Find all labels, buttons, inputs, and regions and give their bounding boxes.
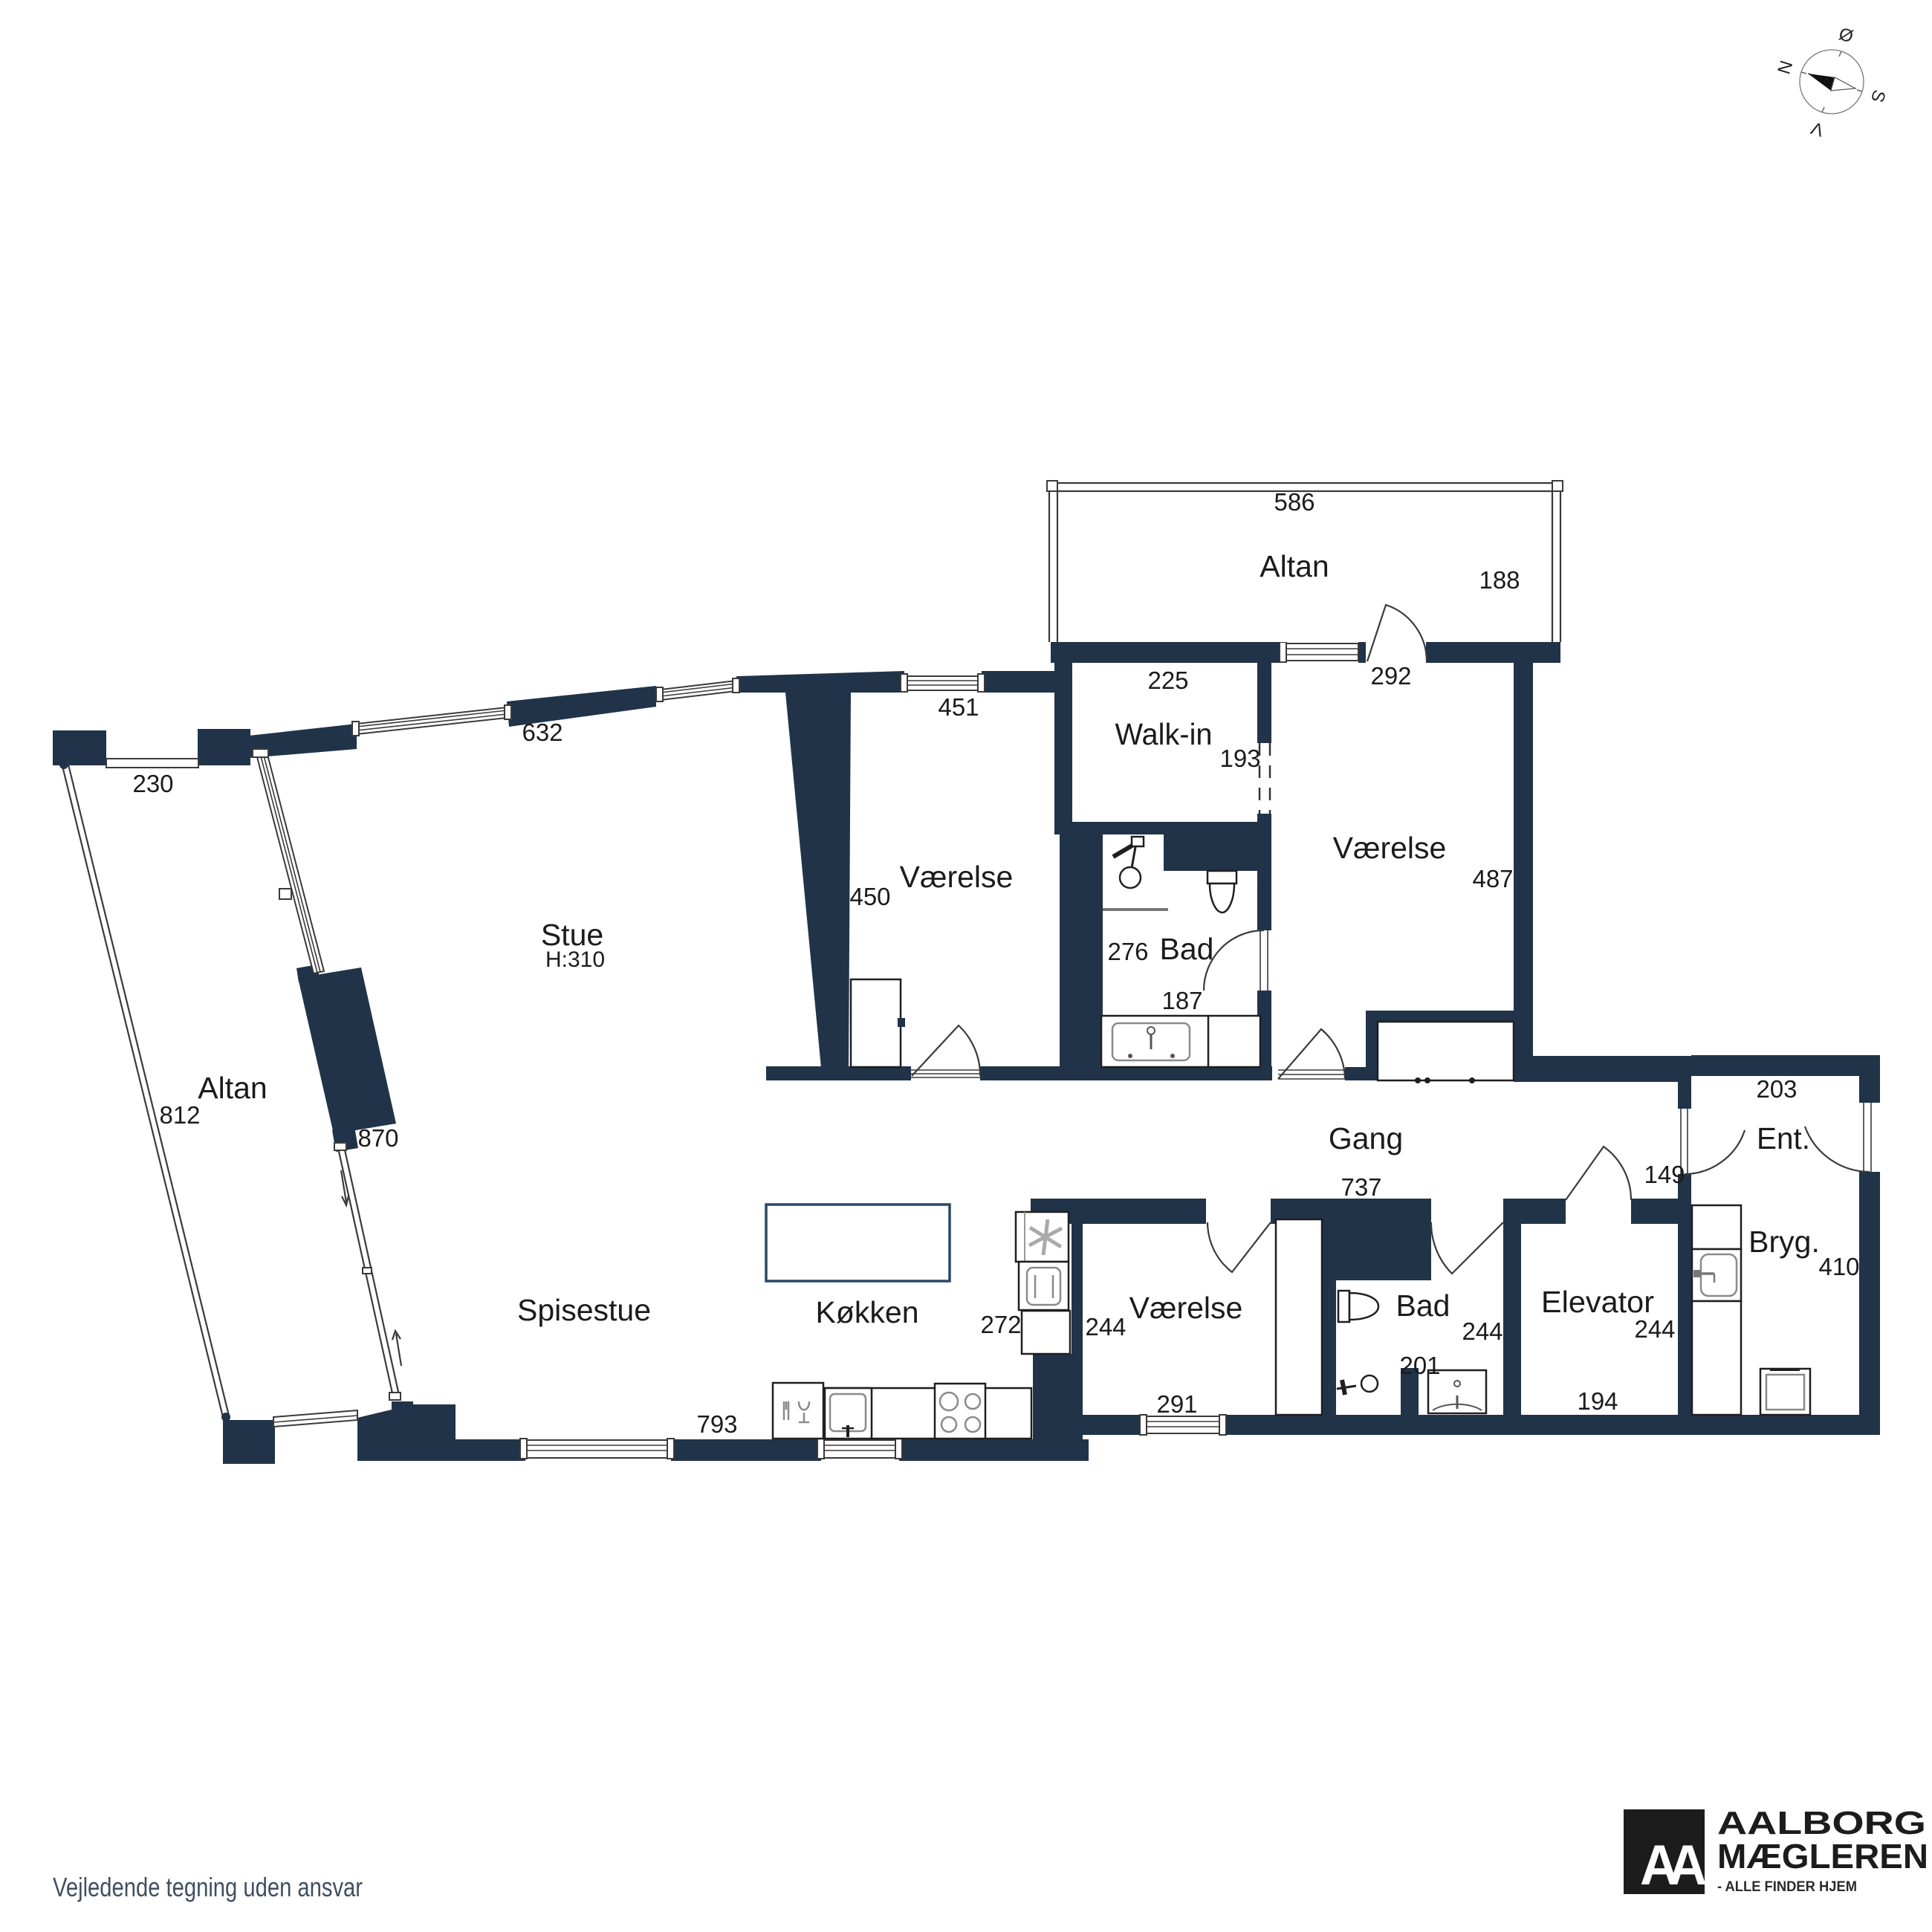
svg-text:Spisestue: Spisestue [517,1293,651,1327]
svg-text:410: 410 [1818,1253,1859,1280]
svg-text:201: 201 [1399,1352,1440,1379]
svg-text:193: 193 [1219,745,1260,772]
svg-text:Elevator: Elevator [1541,1285,1654,1319]
svg-text:586: 586 [1274,488,1315,516]
svg-text:632: 632 [522,719,563,746]
svg-text:487: 487 [1472,865,1513,892]
svg-text:793: 793 [696,1410,737,1438]
svg-text:Køkken: Køkken [816,1295,919,1329]
svg-text:AALBORG: AALBORG [1717,1805,1926,1841]
svg-text:870: 870 [357,1124,398,1152]
svg-text:MÆGLEREN: MÆGLEREN [1717,1837,1928,1876]
svg-text:450: 450 [849,883,890,910]
svg-text:230: 230 [132,770,173,797]
svg-text:244: 244 [1085,1313,1126,1341]
svg-text:Altan: Altan [1260,549,1329,583]
svg-text:188: 188 [1479,566,1520,594]
svg-text:- ALLE FINDER HJEM: - ALLE FINDER HJEM [1717,1879,1857,1895]
svg-text:276: 276 [1107,938,1148,965]
svg-text:Bryg.: Bryg. [1748,1225,1820,1259]
svg-text:292: 292 [1370,662,1411,690]
svg-text:Walk-in: Walk-in [1115,717,1213,751]
svg-text:Bad: Bad [1396,1288,1450,1323]
svg-text:Ent.: Ent. [1757,1121,1810,1155]
svg-text:149: 149 [1644,1161,1685,1188]
svg-text:AA: AA [1640,1834,1705,1897]
svg-text:Vejledende tegning uden ansvar: Vejledende tegning uden ansvar [53,1872,363,1902]
svg-text:H:310: H:310 [545,947,605,972]
svg-text:Gang: Gang [1329,1121,1403,1155]
svg-text:187: 187 [1161,987,1202,1014]
svg-text:244: 244 [1634,1315,1675,1343]
svg-text:Værelse: Værelse [900,860,1014,894]
svg-text:Værelse: Værelse [1333,831,1447,865]
svg-text:225: 225 [1147,667,1188,694]
svg-text:194: 194 [1577,1387,1618,1415]
svg-text:291: 291 [1156,1390,1197,1418]
svg-text:203: 203 [1756,1075,1797,1103]
svg-text:244: 244 [1462,1317,1503,1345]
svg-text:737: 737 [1341,1173,1381,1201]
svg-text:272: 272 [980,1311,1021,1338]
svg-text:451: 451 [938,693,979,721]
svg-text:Bad: Bad [1160,932,1214,966]
svg-text:812: 812 [159,1101,200,1129]
svg-text:Værelse: Værelse [1129,1291,1243,1325]
svg-text:Altan: Altan [198,1071,267,1105]
